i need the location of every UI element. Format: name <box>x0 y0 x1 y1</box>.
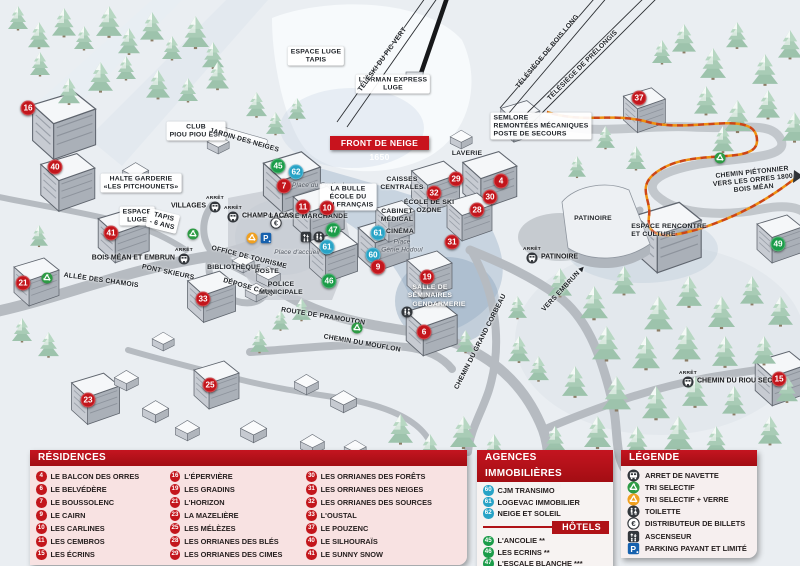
marker-number: 7 <box>36 497 47 508</box>
map-label: TAPIS - 6 ANS <box>145 208 180 234</box>
marker-number: 33 <box>306 510 317 521</box>
marker-number: 4 <box>36 471 47 482</box>
map-marker-61: 61 <box>371 226 386 241</box>
legend-item-label: NEIGE ET SOLEIL <box>498 509 561 518</box>
legend-item: 47L'ESCALE BLANCHE *** <box>483 558 609 566</box>
elevator-icon <box>300 230 312 242</box>
map-label: CABINET MÉDICAL <box>381 208 413 224</box>
map-label: HALTE GARDERIE «LES PITCHOUNETS» <box>101 173 182 192</box>
bus-icon <box>526 251 538 268</box>
legend-item: 41LE SUNNY SNOW <box>306 548 464 561</box>
marker-number: 40 <box>306 536 317 547</box>
legend-item-label: LE CAIRN <box>51 511 86 520</box>
legend-item: 4LE BALCON DES ORRES <box>36 470 170 483</box>
marker-number: 9 <box>36 510 47 521</box>
legende-item: €DISTRIBUTEUR DE BILLETS <box>627 518 753 530</box>
svg-text:P: P <box>630 543 636 553</box>
bus-icon <box>178 252 190 269</box>
map-label: SEMLORE REMONTÉES MÉCANIQUES POSTE DE SE… <box>490 112 591 139</box>
legend-item: 28LES ORRIANES DES BLÉS <box>170 535 306 548</box>
svg-text:€: € <box>274 219 278 227</box>
legend-item-label: LES ORRIANES DES CIMES <box>184 550 282 559</box>
map-marker-46: 46 <box>322 274 337 289</box>
legend-item-label: L'ANCOLIE ** <box>498 536 545 545</box>
legend-item: 29LES ORRIANES DES CIMES <box>170 548 306 561</box>
parking-icon: P <box>260 231 272 243</box>
marker-number: 32 <box>306 497 317 508</box>
legend-item: 37LE POUZENC <box>306 522 464 535</box>
marker-number: 19 <box>170 484 181 495</box>
legende-item-label: ARRET DE NAVETTE <box>645 471 719 480</box>
legende-item: TOILETTE <box>627 506 753 518</box>
map-marker-41: 41 <box>104 226 119 241</box>
bus-icon <box>227 210 239 227</box>
recycle-orange-icon <box>627 493 640 506</box>
hotels-title: HÔTELS <box>552 521 609 534</box>
recycle-green-icon <box>627 481 640 494</box>
svg-text:P: P <box>263 234 268 243</box>
recycle-green-icon <box>351 321 363 333</box>
map-marker-15: 15 <box>772 372 787 387</box>
bus-stop: ARRÊTBOIS MÉAN ET EMBRUN <box>178 252 190 264</box>
bus-stop: ARRÊTCHAMP LACAS <box>227 210 239 222</box>
map-marker-28: 28 <box>470 203 485 218</box>
legend-item-label: LES ORRIANES DES BLÉS <box>184 537 278 546</box>
hotels-header: HÔTELS <box>483 521 609 534</box>
euro-icon: € <box>627 517 640 530</box>
legend-item-label: L'ÉPERVIÈRE <box>184 472 232 481</box>
map-label: CINÉMA <box>386 228 414 236</box>
marker-number: 61 <box>483 497 494 508</box>
map-label: LAVERIE <box>452 150 482 158</box>
legend-item-label: LE SILHOURAÏS <box>321 537 378 546</box>
legend-item-label: LES ORRIANES DES NEIGES <box>321 485 424 494</box>
map-label: SALLE DE SÉMINAIRES <box>408 284 452 300</box>
resort-map: L'ORMAN EXPRESS LUGETÉLÉSKI DU PIC VERTT… <box>0 0 800 566</box>
marker-number: 25 <box>170 523 181 534</box>
residences-panel: RÉSIDENCES 4LE BALCON DES ORRES6LE BELVÉ… <box>30 450 467 565</box>
toilet-icon <box>627 505 640 518</box>
map-label: CHEMIN DU MOUFLON <box>323 333 401 354</box>
legend-item-label: LES GRADINS <box>184 485 235 494</box>
map-marker-25: 25 <box>203 378 218 393</box>
map-label: ALLÉE DES CHAMOIS <box>63 272 139 290</box>
map-marker-11: 11 <box>296 200 311 215</box>
hotels-list: 45L'ANCOLIE **46LES ECRINS **47L'ESCALE … <box>483 535 609 566</box>
bus-stop-label: PATINOIRE <box>541 254 578 261</box>
marker-number: 15 <box>36 549 47 560</box>
legend-item: 21L'HORIZON <box>170 496 306 509</box>
legend-item: 45L'ANCOLIE ** <box>483 535 609 546</box>
legend-item-label: LOGEVAC IMMOBILIER <box>498 498 580 507</box>
map-label: Place d'accueil <box>274 249 319 257</box>
map-label: ESPACE LUGE TAPIS <box>288 46 344 65</box>
residences-list: 4LE BALCON DES ORRES6LE BELVÉDÈRE7LE BOU… <box>30 466 467 565</box>
agences-header: AGENCES IMMOBILIÈRES <box>477 450 613 482</box>
arret-caption: ARRÊT <box>206 196 224 201</box>
arret-caption: ARRÊT <box>679 371 697 376</box>
legend-item-label: LES ORRIANES DES SOURCES <box>321 498 432 507</box>
marker-number: 11 <box>36 536 47 547</box>
legend-item: 15LES ÉCRINS <box>36 548 170 561</box>
legend-item: 30LES ORRIANES DES FORÊTS <box>306 470 464 483</box>
map-label: POLICE MUNICIPALE <box>259 281 303 297</box>
legende-item: TRI SELECTIF <box>627 481 753 493</box>
map-marker-16: 16 <box>21 101 36 116</box>
legend-item: 10LES CARLINES <box>36 522 170 535</box>
legend-item-label: L'OUSTAL <box>321 511 357 520</box>
map-marker-31: 31 <box>445 235 460 250</box>
legend-item: 33L'OUSTAL <box>306 509 464 522</box>
map-label: PATINOIRE <box>574 215 612 223</box>
map-marker-30: 30 <box>483 190 498 205</box>
marker-number: 30 <box>306 471 317 482</box>
legend-item: 32LES ORRIANES DES SOURCES <box>306 496 464 509</box>
bus-stop-label: CHAMP LACAS <box>242 213 294 220</box>
agences-list: 60CJM TRANSIMO61LOGEVAC IMMOBILIER62NEIG… <box>477 482 613 566</box>
map-marker-23: 23 <box>81 393 96 408</box>
bus-icon <box>209 200 221 217</box>
map-marker-62: 62 <box>289 165 304 180</box>
map-label: ESPACE RENCONTRE ET CULTURE <box>631 223 707 239</box>
legend-item-label: L'ESCALE BLANCHE *** <box>498 559 583 566</box>
legend-item: 19LES GRADINS <box>170 483 306 496</box>
marker-number: 62 <box>483 508 494 519</box>
legende-panel: LÉGENDE ARRET DE NAVETTETRI SELECTIFTRI … <box>621 450 757 558</box>
legend-item-label: LE BOUSSOLENC <box>51 498 115 507</box>
map-label: CAISSES CENTRALES <box>380 176 423 192</box>
marker-number: 16 <box>170 471 181 482</box>
bus-stop: ARRÊTVILLAGES <box>209 200 221 212</box>
legend-item: 62NEIGE ET SOLEIL <box>483 508 609 519</box>
legend-item-label: CJM TRANSIMO <box>498 486 555 495</box>
arret-caption: ARRÊT <box>224 206 242 211</box>
legende-header: LÉGENDE <box>621 450 757 466</box>
map-label: CHEMIN PIÉTONNIER VERS LES ORRES 1800 BO… <box>712 165 795 197</box>
map-label: GENDARMERIE <box>412 301 465 309</box>
marker-number: 46 <box>483 547 494 558</box>
recycle-green-icon <box>714 151 726 163</box>
map-label: BIBLIOTHÈQUE <box>207 264 261 272</box>
legende-item: TRI SELECTIF + VERRE <box>627 493 753 505</box>
marker-number: 47 <box>483 558 494 566</box>
legend-item: 40LE SILHOURAÏS <box>306 535 464 548</box>
residences-header: RÉSIDENCES <box>30 450 467 466</box>
residences-column: 30LES ORRIANES DES FORÊTS31LES ORRIANES … <box>306 470 464 561</box>
map-label: Place Génie Hodoul <box>381 238 422 253</box>
residences-column: 4LE BALCON DES ORRES6LE BELVÉDÈRE7LE BOU… <box>36 470 170 561</box>
legende-item-label: DISTRIBUTEUR DE BILLETS <box>645 519 745 528</box>
marker-number: 21 <box>170 497 181 508</box>
map-marker-49: 49 <box>771 237 786 252</box>
legend-item: 60CJM TRANSIMO <box>483 485 609 496</box>
marker-number: 41 <box>306 549 317 560</box>
legend-item-label: LES CEMBROS <box>51 537 105 546</box>
map-marker-29: 29 <box>449 172 464 187</box>
bus-icon <box>682 375 694 392</box>
legende-item-label: PARKING PAYANT ET LIMITÉ <box>645 544 747 553</box>
map-marker-45: 45 <box>271 159 286 174</box>
legend-item: 7LE BOUSSOLENC <box>36 496 170 509</box>
bus-stop: ARRÊTPATINOIRE <box>526 251 538 263</box>
map-label: POSTE <box>255 268 279 276</box>
map-marker-32: 32 <box>427 186 442 201</box>
marker-number: 37 <box>306 523 317 534</box>
legend-item-label: LE SUNNY SNOW <box>321 550 383 559</box>
recycle-orange-icon <box>246 231 258 243</box>
legend-item: 61LOGEVAC IMMOBILIER <box>483 496 609 507</box>
legend-item: 25LES MÉLÈZES <box>170 522 306 535</box>
legend-item-label: LE BALCON DES ORRES <box>51 472 140 481</box>
arret-caption: ARRÊT <box>523 247 541 252</box>
legend-item: 6LE BELVÉDÈRE <box>36 483 170 496</box>
recycle-green-icon <box>41 271 53 283</box>
map-marker-4: 4 <box>494 174 509 189</box>
legend-item-label: LES ECRINS ** <box>498 548 550 557</box>
marker-number: 23 <box>170 510 181 521</box>
legende-item-label: TRI SELECTIF + VERRE <box>645 495 729 504</box>
map-marker-21: 21 <box>16 276 31 291</box>
marker-number: 31 <box>306 484 317 495</box>
legende-item: ASCENSEUR <box>627 530 753 542</box>
marker-number: 10 <box>36 523 47 534</box>
residences-column: 16L'ÉPERVIÈRE19LES GRADINS21L'HORIZON23L… <box>170 470 306 561</box>
legend-item: 46LES ECRINS ** <box>483 547 609 558</box>
parking-icon: P <box>627 542 640 555</box>
map-marker-7: 7 <box>277 179 292 194</box>
marker-number: 6 <box>36 484 47 495</box>
map-marker-61: 61 <box>320 240 335 255</box>
svg-text:€: € <box>631 519 636 528</box>
legende-item-label: TOILETTE <box>645 507 681 516</box>
marker-number: 60 <box>483 485 494 496</box>
map-label: JARDIN DES NEIGES <box>208 127 280 155</box>
legend-item-label: LE BELVÉDÈRE <box>51 485 107 494</box>
recycle-green-icon <box>187 227 199 239</box>
bus-stop-label: CHEMIN DU RIOU SEC <box>697 378 772 385</box>
bus-stop: ARRÊTCHEMIN DU RIOU SEC <box>682 375 694 387</box>
legende-item-label: TRI SELECTIF <box>645 483 695 492</box>
legend-item-label: LES CARLINES <box>51 524 105 533</box>
map-marker-33: 33 <box>196 292 211 307</box>
legend-item: 16L'ÉPERVIÈRE <box>170 470 306 483</box>
legend-item-label: LES ORRIANES DES FORÊTS <box>321 472 426 481</box>
legend-item-label: L'HORIZON <box>184 498 224 507</box>
legend-item-label: LES ÉCRINS <box>51 550 95 559</box>
toilet-icon <box>401 305 413 317</box>
legend-item: 11LES CEMBROS <box>36 535 170 548</box>
legende-item: ARRET DE NAVETTE <box>627 469 753 481</box>
map-marker-6: 6 <box>417 325 432 340</box>
legend-item: 31LES ORRIANES DES NEIGES <box>306 483 464 496</box>
map-marker-10: 10 <box>320 201 335 216</box>
front-de-neige-banner: FRONT DE NEIGE 1650 <box>330 136 429 150</box>
legende-item: PPARKING PAYANT ET LIMITÉ <box>627 542 753 554</box>
marker-number: 45 <box>483 536 494 547</box>
legend-item: 23LA MAZELIÈRE <box>170 509 306 522</box>
bus-icon <box>627 469 640 482</box>
marker-number: 29 <box>170 549 181 560</box>
map-marker-47: 47 <box>326 223 341 238</box>
hotels-divider <box>483 526 552 529</box>
legende-list: ARRET DE NAVETTETRI SELECTIFTRI SELECTIF… <box>621 466 757 558</box>
legend-item: 9LE CAIRN <box>36 509 170 522</box>
legende-item-label: ASCENSEUR <box>645 532 691 541</box>
bus-stop-label: VILLAGES <box>171 203 206 210</box>
bus-stop-label: BOIS MÉAN ET EMBRUN <box>92 255 175 262</box>
legend-item-label: LES MÉLÈZES <box>184 524 235 533</box>
arret-caption: ARRÊT <box>175 248 193 253</box>
map-label: VERS EMBRUN ▶ <box>541 264 588 313</box>
legend-item-label: LE POUZENC <box>321 524 369 533</box>
map-marker-9: 9 <box>371 260 386 275</box>
agences-panel: AGENCES IMMOBILIÈRES 60CJM TRANSIMO61LOG… <box>477 450 613 566</box>
elevator-icon <box>627 530 640 543</box>
marker-number: 28 <box>170 536 181 547</box>
map-marker-37: 37 <box>632 91 647 106</box>
legend-item-label: LA MAZELIÈRE <box>184 511 238 520</box>
map-marker-19: 19 <box>420 270 435 285</box>
map-marker-40: 40 <box>48 160 63 175</box>
